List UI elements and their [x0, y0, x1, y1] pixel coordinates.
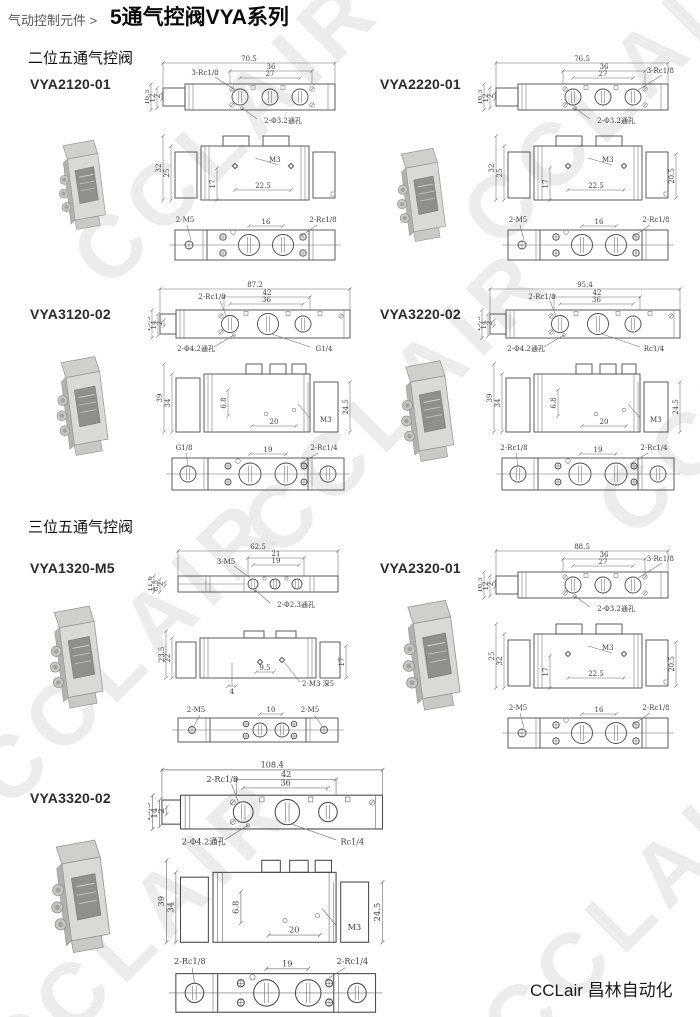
dim-label: 24.5 [372, 903, 382, 922]
product-photo [44, 136, 118, 230]
dim-label: 20.5 [668, 656, 676, 672]
technical-drawing: 88.536273-Rc1/816.51222-Φ3.2通孔253217M322… [478, 538, 693, 768]
dim-label: 32 [496, 657, 504, 666]
bottom-view: G1/8192-Rc1/4 [166, 444, 350, 490]
technical-drawing: 76.536273-Rc1/816.51222-Φ3.2通孔322517M322… [478, 50, 693, 280]
dim-label: 2-Rc1/8 [206, 774, 238, 784]
section-heading-2pos: 二位五通气控阀 [28, 47, 133, 68]
dim-label: 70.5 [241, 55, 257, 63]
dim-label: M3 [348, 922, 361, 932]
dim-label: 17 [542, 180, 550, 189]
dim-label: M3 [602, 644, 614, 652]
top-view: 108.442362-Rc1/82-Φ4.2通孔Rc1/419.5142 [148, 759, 384, 846]
dim-label: 87.2 [247, 281, 263, 289]
dim-label: 25 [496, 169, 504, 178]
side-view: 39346.8M32024.5 [486, 362, 682, 433]
top-view: 70.536273-Rc1/816.51222-Φ3.2通孔 [145, 55, 337, 125]
product-photo [386, 356, 466, 462]
dim-label: 20 [270, 418, 279, 426]
model-label: VYA2120-01 [30, 76, 111, 92]
top-view: 88.536273-Rc1/816.51222-Φ3.2通孔 [478, 543, 674, 613]
dim-label: 24.5 [672, 399, 680, 415]
dim-label: 76.5 [574, 55, 590, 63]
page-title: 5通气控阀VYA系列 [110, 1, 289, 31]
dim-label: 27 [599, 558, 608, 566]
dim-label: Rc1/4 [340, 836, 364, 846]
dim-label: 3-Rc1/8 [191, 69, 218, 77]
dim-label: 6.8 [230, 901, 240, 914]
dim-label: 25 [488, 652, 496, 661]
dim-label: 27 [266, 70, 275, 78]
model-label: VYA3120-02 [30, 306, 111, 322]
dim-label: 17 [338, 658, 346, 667]
model-label: VYA1320-M5 [30, 560, 115, 576]
dim-label: 95.4 [577, 281, 593, 289]
dim-label: 16 [595, 218, 604, 226]
side-view: 322517M322.520.5 [488, 134, 678, 201]
dim-label: 2-Φ2.3通孔 [277, 600, 315, 609]
dim-label: 3-M5 [217, 558, 235, 566]
dim-label: 36 [592, 296, 601, 304]
dim-label: 6.8 [220, 397, 228, 408]
dim-label: 2-M5 [176, 216, 194, 224]
dim-label: 10 [267, 706, 276, 714]
dim-label: 20 [289, 924, 299, 934]
dim-label: 2-M5 [509, 216, 527, 224]
dim-label: 2 [156, 321, 164, 325]
product-photo [382, 144, 458, 242]
dim-label: 16 [262, 218, 271, 226]
dim-label: 16 [595, 706, 604, 714]
dim-label: 19 [264, 446, 273, 454]
section-heading-3pos: 三位五通气控阀 [28, 516, 133, 537]
dim-label: 2-Rc1/8 [309, 216, 336, 224]
top-view: 62.521193-M52-Φ2.3通孔11.68.52 [148, 543, 340, 609]
technical-drawing: 87.242362-Rc1/82-Φ4.2通孔G1/419.514239346.… [148, 278, 363, 508]
dim-label: 2 [487, 94, 495, 98]
dim-label: 3-Rc1/8 [647, 67, 674, 75]
dim-label: 22.5 [588, 182, 604, 190]
dim-label: 6.8 [550, 397, 558, 408]
dim-label: 2-Rc1/4 [337, 956, 369, 966]
dim-label: G1/8 [176, 444, 193, 452]
dim-label: 2-M5 [301, 706, 319, 714]
bottom-view: 2-Rc1/8192-Rc1/4 [169, 956, 383, 1012]
dim-label: 22.5 [255, 182, 271, 190]
dim-label: 2-Φ3.2通孔 [597, 604, 635, 613]
bottom-view: 2-M5162-Rc1/8 [502, 216, 674, 260]
product-photo [36, 830, 122, 958]
technical-drawing: 95.442362-Rc1/82-Φ4.2通孔Rc1/419.514239346… [478, 278, 693, 508]
dim-label: 32 [488, 164, 496, 173]
dim-label: 25 [163, 169, 171, 178]
dim-label: 2-Φ4.2通孔 [182, 836, 226, 846]
dim-label: 2-Φ4.2通孔 [177, 344, 215, 353]
dim-label: 2 [157, 582, 165, 586]
top-view: 95.442362-Rc1/82-Φ4.2通孔Rc1/419.5142 [478, 281, 682, 353]
dim-label: G1/4 [316, 345, 333, 353]
product-photo [36, 598, 114, 712]
side-view: 322517M322.5 [155, 134, 335, 201]
footer-brand: CCLair 昌林自动化 [530, 976, 673, 1001]
dim-label: 2-Rc1/4 [640, 444, 668, 452]
dim-label: 2-Rc1/8 [642, 704, 669, 712]
side-view: 39346.8M32024.5 [156, 858, 384, 944]
dim-label: 20.5 [668, 168, 676, 184]
dim-label: 39 [156, 394, 164, 403]
dim-label: 62.5 [250, 543, 266, 551]
breadcrumb[interactable]: 气动控制元件 > [8, 10, 97, 29]
dim-label: 19 [272, 557, 281, 565]
dim-label: 17 [209, 180, 217, 189]
dim-label: 2-Rc1/8 [174, 956, 206, 966]
bottom-view: 2-M5162-Rc1/8 [169, 216, 341, 260]
dim-label: 9.5 [259, 664, 270, 672]
bottom-view: 2-M5102-M5 [172, 706, 344, 742]
dim-label: 27 [599, 70, 608, 78]
dim-label: 22 [164, 654, 172, 663]
dim-label: 19 [594, 446, 603, 454]
dim-label: 2 [154, 94, 162, 98]
dim-label: 2 [487, 582, 495, 586]
dim-label: 2-M5 [187, 706, 205, 714]
dim-label: 36 [262, 296, 271, 304]
top-view: 76.536273-Rc1/816.51222-Φ3.2通孔 [478, 55, 674, 125]
technical-drawing: 70.536273-Rc1/816.51222-Φ3.2通孔322517M322… [145, 50, 360, 280]
top-view: 87.242362-Rc1/82-Φ4.2通孔G1/419.5142 [148, 281, 352, 353]
dim-label: M3 [320, 416, 332, 424]
dim-label: M3 [602, 156, 614, 164]
dim-label: 3-Rc1/8 [647, 555, 674, 563]
dim-label: 88.5 [574, 543, 590, 551]
dim-label: Rc1/4 [644, 345, 665, 353]
dim-label: 2-Φ4.2通孔 [507, 344, 545, 353]
dim-label: 17 [542, 668, 550, 677]
model-label: VYA3320-02 [30, 790, 111, 806]
dim-label: M3 [650, 416, 662, 424]
side-view: 253217M322.520.5 [488, 622, 678, 689]
product-photo [40, 352, 122, 456]
dim-label: 36 [280, 777, 290, 787]
catalog-page: CCLAIR CCLAIR CCLAIR CCLAIR CCLAIR CCLAI… [0, 0, 700, 1017]
dim-label: 2-Rc1/8 [500, 444, 527, 452]
dim-label: 2-M5 [509, 704, 527, 712]
dim-label: 19 [282, 958, 292, 968]
dim-label: 34 [164, 398, 172, 407]
dim-label: 2-M3 深5 [302, 679, 334, 688]
technical-drawing: 108.442362-Rc1/82-Φ4.2通孔Rc1/419.51423934… [148, 756, 388, 1014]
dim-label: 34 [165, 902, 175, 913]
dim-label: 2-Rc1/8 [642, 216, 669, 224]
dim-label: 24.5 [342, 399, 350, 415]
dim-label: 2-Rc1/4 [310, 444, 338, 452]
side-view: 23.5229.542-M3 深517 [158, 629, 348, 696]
dim-label: 2-Φ3.2通孔 [597, 116, 635, 125]
model-label: VYA2220-01 [380, 76, 461, 92]
bottom-view: 2-M5162-Rc1/8 [502, 704, 674, 748]
dim-label: 32 [155, 164, 163, 173]
product-photo [388, 592, 472, 714]
dim-label: 20 [600, 418, 609, 426]
dim-label: 22.5 [588, 670, 604, 678]
model-label: VYA2320-01 [380, 560, 461, 576]
model-label: VYA3220-02 [380, 306, 461, 322]
dim-label: 2 [486, 321, 494, 325]
dim-label: 2-Rc1/8 [528, 293, 555, 301]
dim-label: 2-Rc1/8 [198, 293, 225, 301]
dim-label: 34 [494, 398, 502, 407]
dim-label: 2-Φ3.2通孔 [264, 116, 302, 125]
dim-label: 2 [156, 808, 166, 813]
dim-label: 39 [486, 394, 494, 403]
watermark-text: CCLAIR [461, 726, 700, 1017]
side-view: 39346.8M32024.5 [156, 362, 352, 433]
dim-label: M3 [269, 156, 281, 164]
technical-drawing: 62.521193-M52-Φ2.3通孔11.68.5223.5229.542-… [148, 534, 363, 764]
dim-label: 4 [230, 688, 235, 696]
bottom-view: 2-Rc1/8192-Rc1/4 [496, 444, 680, 490]
